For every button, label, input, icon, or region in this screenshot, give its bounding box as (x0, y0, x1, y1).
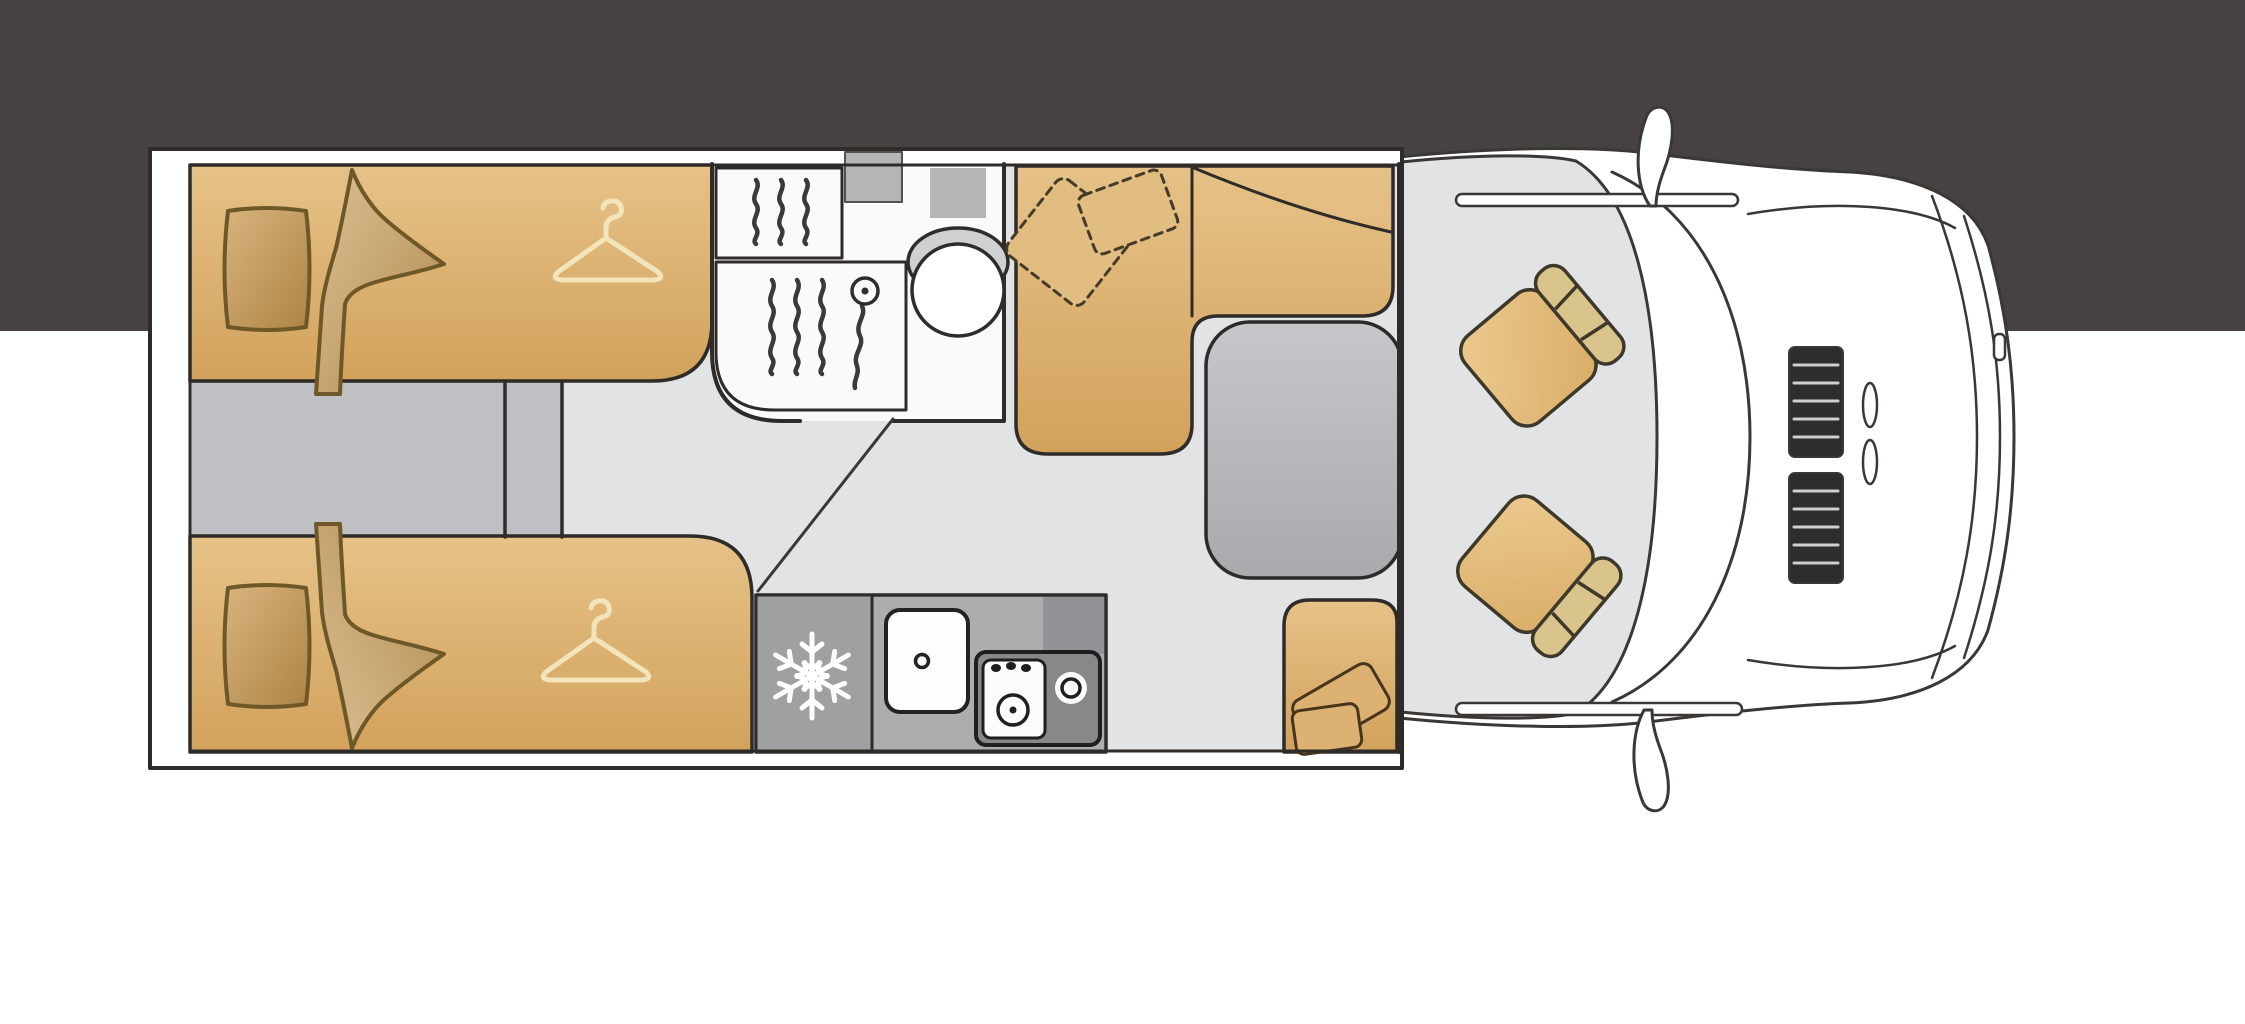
cistern (930, 168, 986, 218)
pillow (225, 208, 310, 330)
toilet-icon (908, 228, 1008, 336)
travel-seat (1284, 600, 1397, 755)
cab (1399, 107, 2014, 811)
kitchen (756, 595, 1106, 752)
hob-icon (976, 652, 1100, 745)
habitation-plan (150, 149, 1402, 768)
table (1206, 322, 1402, 578)
sink-icon (886, 610, 968, 712)
counter-dark-section (1043, 597, 1104, 654)
headlight-icon (1863, 383, 1877, 427)
bathroom-shelf (845, 152, 902, 202)
wing-mirror-icon (1634, 710, 1668, 811)
front-badge (1994, 334, 2005, 360)
pillow (225, 585, 310, 707)
screenshot-canvas (0, 0, 2245, 1024)
door-sill-bottom (1456, 703, 1742, 715)
headlight-icon (1863, 440, 1877, 484)
shower-head-icon (852, 278, 878, 304)
door-sill-top (1456, 194, 1738, 206)
floorplan-drawing (0, 0, 2245, 1024)
